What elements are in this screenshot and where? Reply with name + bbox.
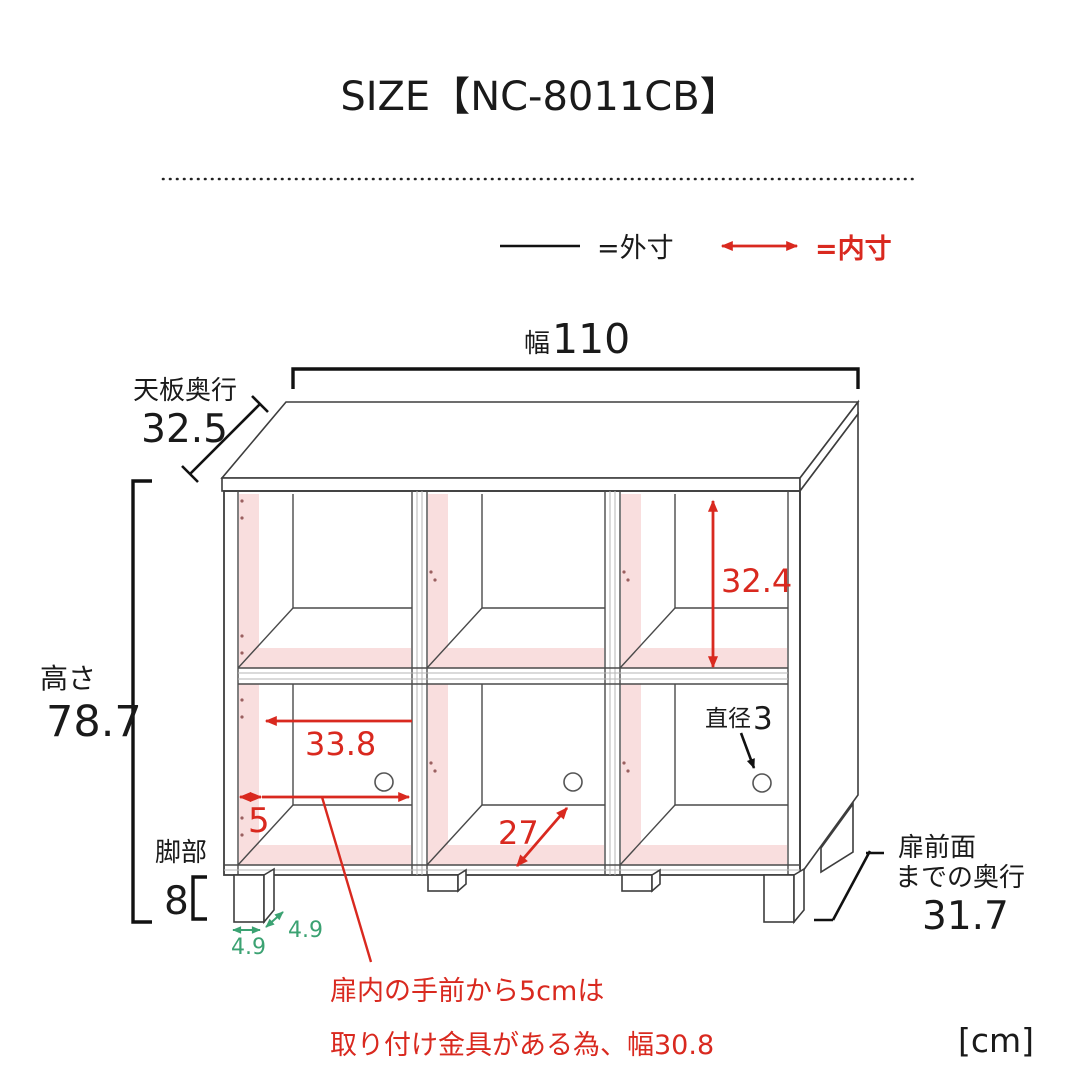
leg-width-value: 4.9 bbox=[231, 935, 266, 960]
compartment-top-left bbox=[238, 494, 412, 668]
hole-label: 直径 bbox=[705, 706, 751, 732]
note-line-1: 扉内の手前から5cmは bbox=[330, 976, 604, 1007]
height-value: 78.7 bbox=[46, 697, 142, 747]
legend-outer-label: =外寸 bbox=[597, 233, 674, 264]
middle-right-leg bbox=[622, 875, 652, 891]
door-depth-label-2: までの奥行 bbox=[895, 863, 1025, 893]
cabinet-drawing bbox=[222, 402, 858, 922]
legs bbox=[234, 869, 804, 922]
middle-left-leg-side bbox=[458, 870, 466, 891]
size-diagram-page: SIZE【NC-8011CB】 =外寸 =内寸 bbox=[0, 0, 1080, 1080]
height-dimension: 高さ 78.7 bbox=[40, 481, 152, 922]
middle-left-leg bbox=[428, 875, 458, 891]
inner-width-value: 33.8 bbox=[305, 725, 376, 763]
diagram-canvas: SIZE【NC-8011CB】 =外寸 =内寸 bbox=[0, 0, 1080, 1080]
legend: =外寸 =内寸 bbox=[500, 233, 892, 265]
door-depth-value: 31.7 bbox=[922, 894, 1009, 939]
note-line-2: 取り付け金具がある為、幅30.8 bbox=[330, 1030, 714, 1061]
inner-height-value: 32.4 bbox=[721, 562, 792, 600]
cable-hole-left bbox=[375, 773, 393, 791]
leg-bracket bbox=[193, 877, 207, 919]
leg-depth-value: 4.9 bbox=[288, 918, 323, 943]
hole-callout: 直径 3 bbox=[705, 701, 773, 768]
width-bracket bbox=[293, 369, 858, 389]
note-leader-line bbox=[322, 797, 371, 962]
leg-value: 8 bbox=[164, 879, 189, 924]
middle-right-leg-side bbox=[652, 870, 660, 891]
door-depth-label-1: 扉前面 bbox=[898, 833, 976, 863]
top-depth-value: 32.5 bbox=[141, 407, 228, 452]
front-right-leg bbox=[764, 875, 794, 922]
cabinet-top-front-edge bbox=[222, 478, 800, 491]
inner-height-dimension: 32.4 bbox=[713, 501, 792, 667]
width-dimension: 幅 110 bbox=[293, 315, 858, 389]
leg-label: 脚部 bbox=[155, 838, 207, 868]
front-left-leg-side bbox=[264, 869, 274, 922]
hole-arrow bbox=[741, 733, 754, 768]
front-left-leg bbox=[234, 875, 264, 922]
cable-hole-middle bbox=[564, 773, 582, 791]
inner-depth-value: 27 bbox=[498, 814, 539, 852]
width-prefix: 幅 bbox=[524, 329, 550, 359]
legend-inner-label: =内寸 bbox=[815, 234, 892, 265]
page-title: SIZE【NC-8011CB】 bbox=[340, 74, 739, 120]
inner-width-dimension: 33.8 bbox=[266, 721, 412, 763]
leg-height-dimension: 脚部 8 bbox=[155, 838, 207, 924]
front-gap-value: 5 bbox=[248, 801, 270, 841]
hole-value: 3 bbox=[753, 701, 773, 737]
top-depth-label: 天板奥行 bbox=[133, 376, 237, 406]
height-label: 高さ bbox=[40, 662, 96, 695]
front-right-leg-side bbox=[794, 869, 804, 922]
unit-label: [cm] bbox=[958, 1021, 1034, 1060]
cabinet-top-face bbox=[222, 402, 858, 478]
width-value: 110 bbox=[552, 315, 630, 363]
cable-hole-right bbox=[753, 774, 771, 792]
compartment-top-middle bbox=[427, 494, 605, 668]
cabinet-right-side-panel bbox=[800, 414, 858, 875]
